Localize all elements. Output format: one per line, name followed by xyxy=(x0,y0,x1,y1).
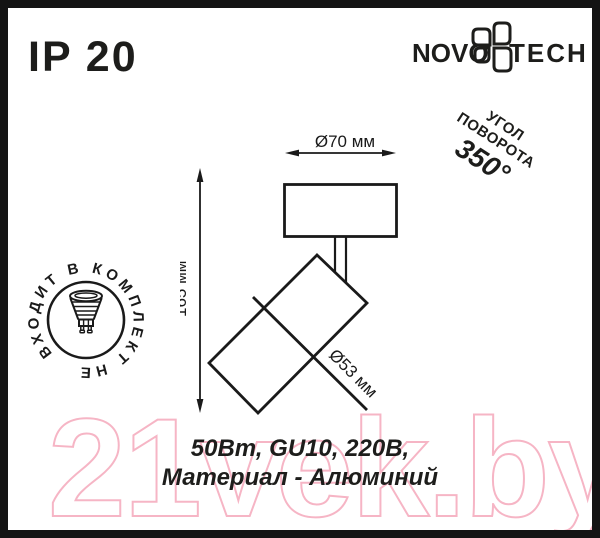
rotation-angle-note: УГОЛ ПОВОРОТА 350° xyxy=(421,84,564,208)
not-included-stamp: ВХОДИТ В КОМПЛЕКТ НЕ xyxy=(14,246,160,396)
novotech-clover-icon xyxy=(470,20,514,74)
spot-body xyxy=(209,255,367,413)
logo-text-tech: TECH xyxy=(509,38,588,69)
mount-plate xyxy=(285,185,397,237)
technical-drawing: Ø70 мм 165 мм Ø53 мм xyxy=(180,130,420,420)
gu10-lamp-icon xyxy=(70,291,102,333)
height-dimension-label: 165 мм xyxy=(180,261,190,317)
diameter-dimension-label: Ø53 мм xyxy=(325,345,381,401)
product-diagram-image: 21vek.by IP 20 NOVO TECH УГОЛ ПОВОРОТА 3… xyxy=(0,0,600,538)
specs-block: 50Вт, GU10, 220В, Материал - Алюминий xyxy=(0,434,600,492)
ip-rating-label: IP 20 xyxy=(28,33,138,82)
specs-line2: Материал - Алюминий xyxy=(0,463,600,492)
specs-line1: 50Вт, GU10, 220В, xyxy=(0,434,600,463)
width-dimension-label: Ø70 мм xyxy=(315,132,375,151)
height-dimension-arrow xyxy=(197,168,204,413)
